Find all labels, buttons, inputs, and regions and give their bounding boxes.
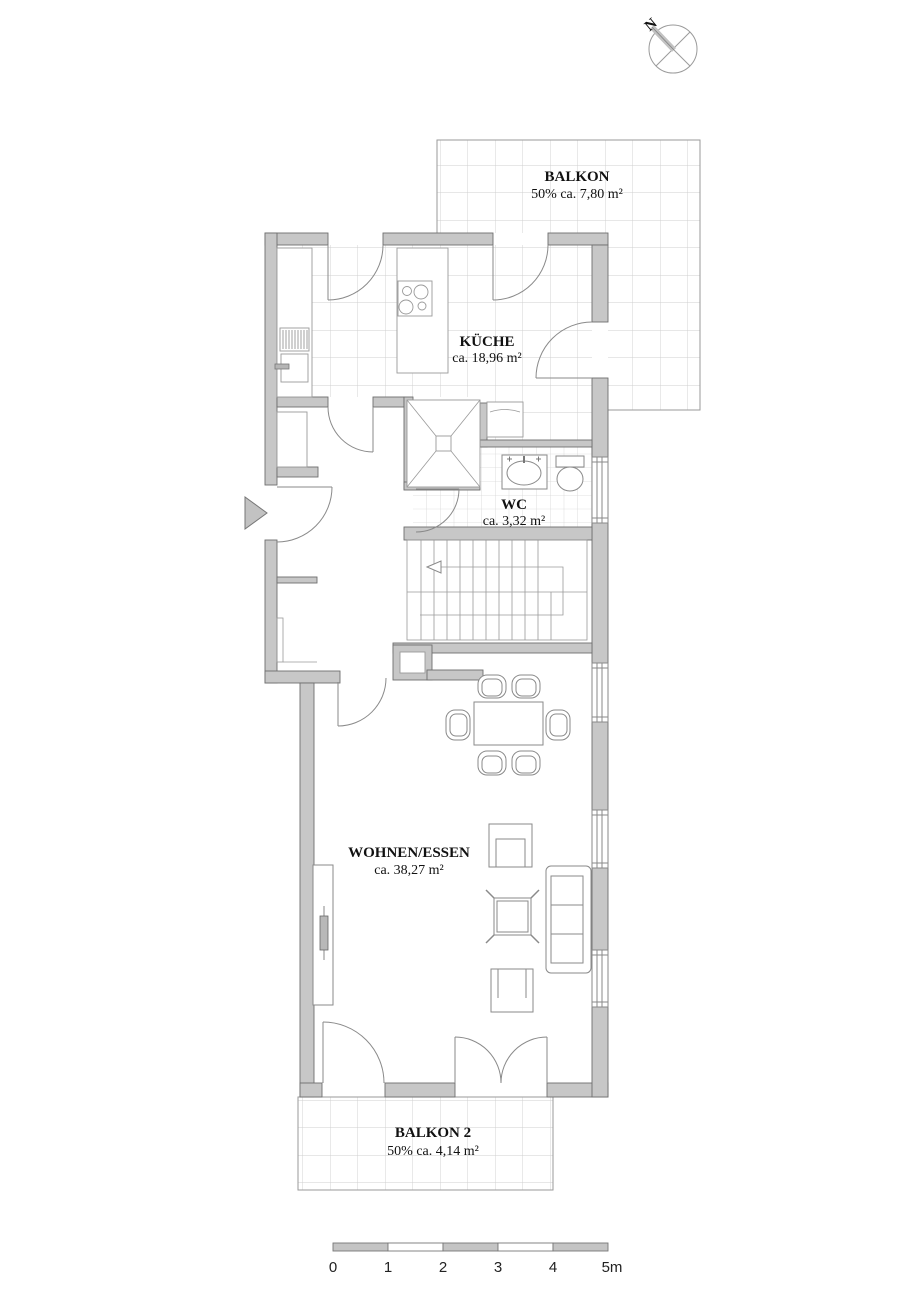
- scale-tick-label: 1: [384, 1259, 392, 1276]
- balcony-top-label: BALKON: [544, 169, 609, 185]
- tv-icon: [320, 916, 328, 950]
- scale-tick-label: 4: [549, 1259, 557, 1276]
- wall-niche: [277, 412, 307, 467]
- dining-set: [446, 675, 570, 775]
- wc-label: WC: [501, 497, 527, 513]
- stove-icon: [398, 281, 432, 316]
- dining-table-icon: [474, 702, 543, 745]
- scale-bar-segment: [553, 1243, 608, 1251]
- stairs-icon: [407, 540, 587, 640]
- balcony-bottom-label: BALKON 2: [395, 1125, 471, 1141]
- scale-tick-label: 2: [439, 1259, 447, 1276]
- tv-lowboard-icon: [313, 865, 333, 1005]
- balcony-top-area: 50% ca. 7,80 m²: [531, 187, 623, 202]
- kitchen-counter: [275, 248, 312, 397]
- scale-bar-segment: [443, 1243, 498, 1251]
- floor-plan-svg: BALKON 50% ca. 7,80 m² KÜCHE ca. 18,96 m…: [0, 0, 920, 1302]
- entrance-arrow-icon: [245, 497, 267, 529]
- duct-shaft: [400, 652, 425, 673]
- toilet-icon: [556, 456, 584, 491]
- floor-plan-page: BALKON 50% ca. 7,80 m² KÜCHE ca. 18,96 m…: [0, 0, 920, 1302]
- living-area: ca. 38,27 m²: [374, 863, 444, 878]
- armchair-icon: [489, 824, 532, 867]
- washing-machine-icon: [487, 402, 523, 437]
- wc-area: ca. 3,32 m²: [483, 514, 546, 529]
- window: [592, 663, 608, 722]
- window: [592, 810, 608, 868]
- sofa-icon: [546, 866, 591, 973]
- scale-tick-label: 5m: [602, 1259, 623, 1276]
- scale-bar-segment: [388, 1243, 443, 1251]
- window: [592, 457, 608, 523]
- balcony-bottom-area: 50% ca. 4,14 m²: [387, 1144, 479, 1159]
- compass-icon: N: [642, 15, 697, 73]
- coffee-table-icon: [486, 890, 539, 943]
- shower-icon: [407, 400, 480, 487]
- armchair-icon: [491, 969, 533, 1012]
- living-label: WOHNEN/ESSEN: [348, 845, 470, 861]
- kitchen-label: KÜCHE: [459, 333, 514, 350]
- washbasin-icon: [502, 455, 547, 489]
- scale-bar-segment: [498, 1243, 553, 1251]
- scale-bar-segment: [333, 1243, 388, 1251]
- window: [592, 950, 608, 1007]
- scale-tick-label: 3: [494, 1259, 502, 1276]
- scale-tick-label: 0: [329, 1259, 337, 1276]
- kitchen-island: [397, 248, 448, 373]
- kitchen-area: ca. 18,96 m²: [452, 351, 522, 366]
- scale-bar: 0 1 2 3 4 5m: [329, 1243, 623, 1276]
- faucet-icon: [275, 364, 289, 369]
- sink-drainer-icon: [280, 328, 309, 351]
- hall-step: [277, 618, 317, 662]
